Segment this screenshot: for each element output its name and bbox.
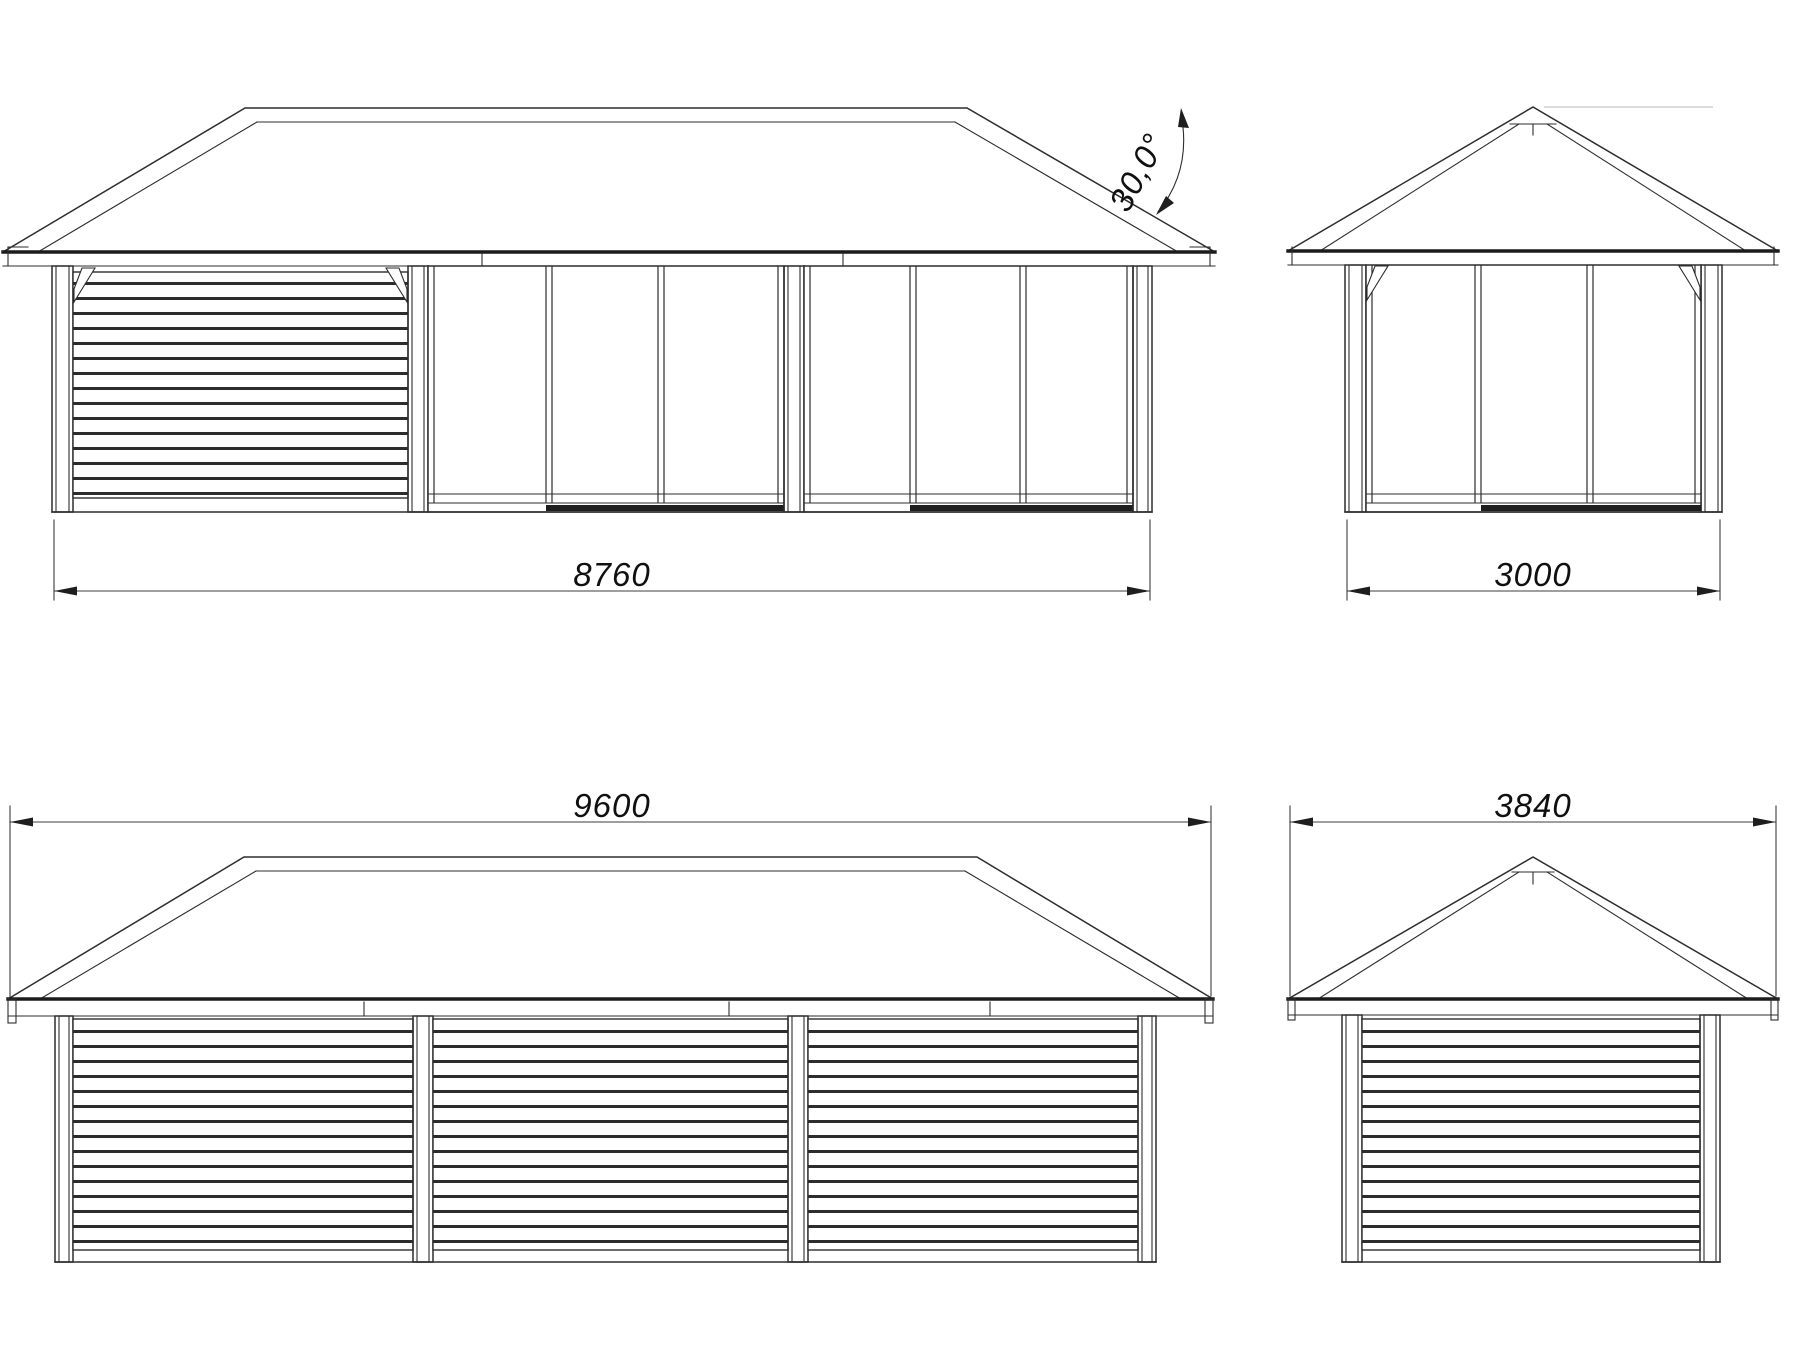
slat-wall-module bbox=[73, 272, 408, 498]
front-fascia bbox=[3, 247, 1215, 266]
slat-wall-module bbox=[808, 1019, 1138, 1250]
side-roof bbox=[1288, 107, 1778, 251]
corner-post bbox=[1133, 266, 1152, 512]
front-elevation-view: 8760 30,0° bbox=[3, 108, 1215, 600]
door-threshold bbox=[546, 505, 784, 511]
arc-arrowhead bbox=[1156, 196, 1174, 215]
dimension-label-rear-roof-width: 9600 bbox=[573, 787, 650, 824]
glazed-module-a bbox=[428, 266, 784, 512]
rear-roof bbox=[8, 857, 1213, 999]
slat-wall-module bbox=[433, 1019, 788, 1250]
roof-pitch-annotation: 30,0° bbox=[1102, 108, 1189, 217]
mid-post-face bbox=[417, 1016, 429, 1262]
front-wall bbox=[52, 266, 1152, 512]
corner-post bbox=[1701, 265, 1722, 512]
dimension-label-side-width: 3000 bbox=[1494, 556, 1571, 593]
corner-post-face bbox=[1142, 1016, 1152, 1262]
slat-wall-module bbox=[73, 1019, 413, 1250]
front-roof bbox=[3, 108, 1215, 252]
side-elevation-slatted-view: 3840 bbox=[1288, 787, 1778, 1262]
corner-post-face bbox=[1704, 1015, 1716, 1262]
dimension-3840: 3840 bbox=[1290, 787, 1776, 996]
dimension-label-side-roof-width: 3840 bbox=[1494, 787, 1571, 824]
corner-post-face bbox=[1346, 1015, 1358, 1262]
rear-elevation-view: 9600 bbox=[8, 787, 1213, 1262]
side-elevation-glazed-view: 3000 bbox=[1288, 107, 1778, 600]
corner-post bbox=[55, 1016, 73, 1262]
slatted-side-wall bbox=[1342, 1015, 1720, 1262]
mid-post bbox=[408, 266, 428, 512]
corner-post bbox=[52, 266, 73, 512]
elevation-drawing-canvas: 8760 30,0° bbox=[0, 0, 1800, 1350]
side-fascia bbox=[1288, 247, 1778, 265]
corner-post-face bbox=[1137, 266, 1148, 512]
mid-post bbox=[784, 266, 804, 512]
corner-post bbox=[1345, 265, 1366, 512]
door-threshold bbox=[1481, 505, 1701, 511]
mid-post bbox=[413, 1016, 433, 1262]
slat-wall-module bbox=[1362, 1019, 1700, 1250]
corner-post-face bbox=[1705, 265, 1718, 512]
door-threshold bbox=[910, 505, 1133, 511]
side-wall bbox=[1345, 265, 1722, 512]
dimension-3000: 3000 bbox=[1347, 520, 1720, 600]
rear-wall bbox=[55, 1016, 1156, 1262]
arc-arrowhead bbox=[1178, 108, 1189, 128]
mid-post bbox=[788, 1016, 808, 1262]
corner-post bbox=[1342, 1015, 1362, 1262]
glazed-module-b bbox=[804, 266, 1133, 512]
slatted-side-roof bbox=[1288, 857, 1778, 999]
mid-post-face bbox=[788, 266, 800, 512]
corner-post-face bbox=[59, 1016, 69, 1262]
dimension-8760: 8760 bbox=[54, 520, 1150, 600]
dimension-9600: 9600 bbox=[10, 787, 1211, 998]
corner-post-face bbox=[56, 266, 69, 512]
corner-post bbox=[1138, 1016, 1156, 1262]
glazed-module-side bbox=[1366, 265, 1701, 512]
mid-post-face bbox=[792, 1016, 804, 1262]
dimension-label-front-width: 8760 bbox=[573, 556, 650, 593]
corner-post bbox=[1700, 1015, 1720, 1262]
mid-post-face bbox=[412, 266, 424, 512]
corner-post-face bbox=[1349, 265, 1362, 512]
